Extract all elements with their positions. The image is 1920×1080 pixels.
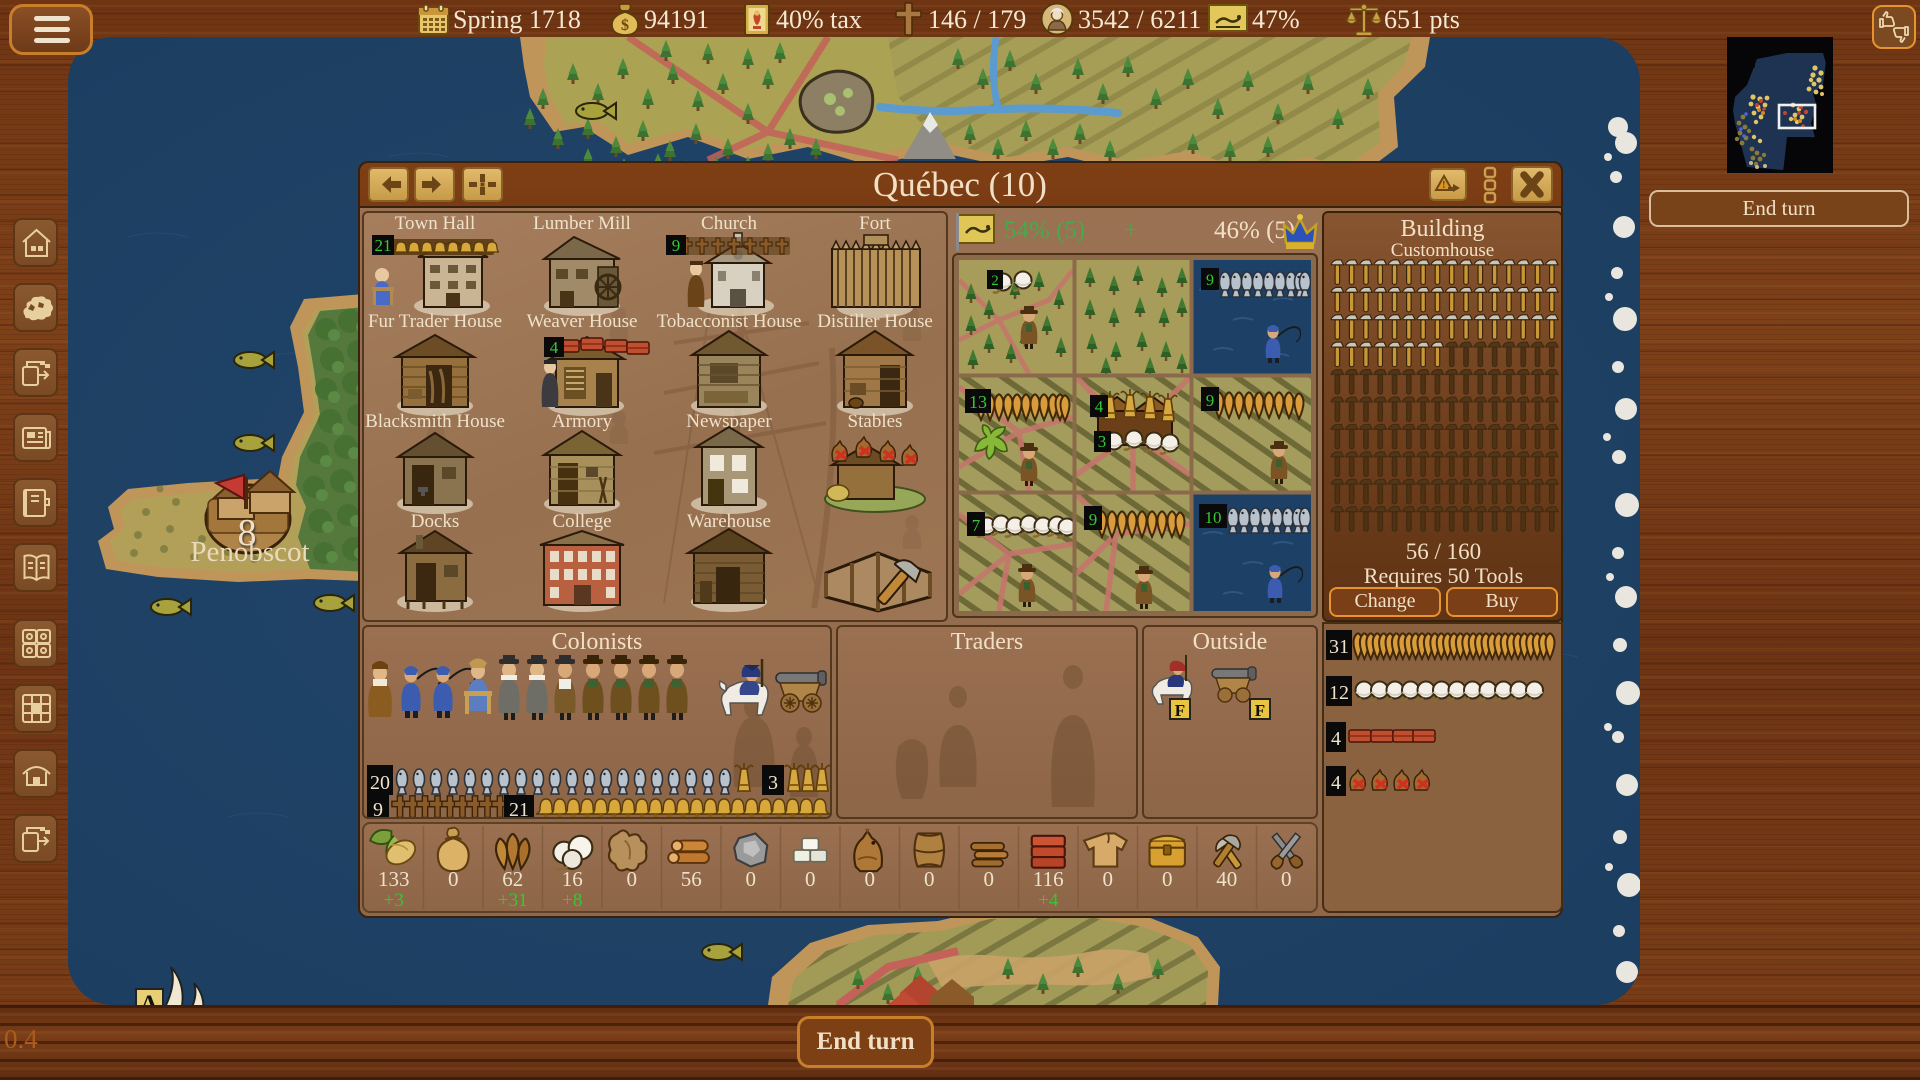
svg-text:9: 9: [1206, 272, 1214, 289]
svg-text:$: $: [621, 17, 629, 34]
svg-text:16: 16: [562, 867, 583, 891]
svg-text:+4: +4: [1038, 890, 1059, 911]
svg-text:0: 0: [448, 867, 459, 891]
svg-text:21: 21: [509, 799, 529, 819]
svg-text:0: 0: [627, 867, 638, 891]
svg-text:F: F: [1175, 701, 1185, 720]
svg-text:Church: Church: [701, 213, 757, 234]
svg-text:0: 0: [984, 867, 995, 891]
svg-text:10: 10: [1205, 508, 1222, 527]
svg-text:0: 0: [924, 867, 935, 891]
svg-text:Fort: Fort: [859, 213, 891, 234]
svg-text:F: F: [1255, 701, 1265, 720]
svg-text:3: 3: [1098, 432, 1107, 451]
svg-text:0: 0: [1162, 867, 1173, 891]
svg-text:Docks: Docks: [411, 511, 460, 532]
svg-text:+31: +31: [498, 890, 528, 911]
svg-text:3: 3: [768, 772, 778, 794]
svg-text:Lumber Mill: Lumber Mill: [533, 213, 631, 234]
svg-text:7: 7: [972, 516, 981, 535]
svg-text:Penobscot: Penobscot: [190, 536, 309, 568]
svg-text:116: 116: [1033, 867, 1064, 891]
svg-text:4: 4: [550, 338, 559, 357]
svg-text:Distiller House: Distiller House: [817, 311, 933, 332]
svg-text:+3: +3: [384, 890, 404, 911]
svg-text:+8: +8: [562, 890, 582, 911]
svg-text:Armory: Armory: [552, 411, 613, 432]
svg-text:!: !: [1442, 179, 1446, 191]
svg-text:12: 12: [1329, 682, 1349, 704]
svg-text:0: 0: [1103, 867, 1114, 891]
svg-text:9: 9: [672, 236, 681, 255]
svg-text:4: 4: [1095, 397, 1104, 416]
svg-text:Blacksmith House: Blacksmith House: [365, 411, 505, 432]
svg-text:0: 0: [1281, 867, 1292, 891]
svg-text:Tobacconist House: Tobacconist House: [657, 311, 802, 332]
svg-text:College: College: [552, 511, 611, 532]
svg-text:0: 0: [746, 867, 757, 891]
svg-text:Fur Trader House: Fur Trader House: [368, 311, 502, 332]
svg-text:9: 9: [1206, 391, 1215, 410]
svg-text:21: 21: [375, 236, 392, 255]
svg-text:0: 0: [805, 867, 816, 891]
svg-text:2: 2: [991, 273, 999, 289]
svg-text:9: 9: [1089, 510, 1098, 529]
svg-text:4: 4: [1331, 772, 1341, 794]
svg-text:62: 62: [502, 867, 523, 891]
svg-text:A: A: [140, 991, 158, 1005]
svg-text:56: 56: [681, 867, 702, 891]
svg-text:0: 0: [865, 867, 876, 891]
svg-text:13: 13: [969, 392, 987, 412]
svg-text:133: 133: [378, 867, 410, 891]
svg-text:40: 40: [1216, 867, 1237, 891]
svg-text:4: 4: [1331, 728, 1341, 750]
svg-text:20: 20: [370, 772, 390, 794]
svg-text:Stables: Stables: [848, 411, 903, 432]
svg-text:31: 31: [1329, 636, 1349, 658]
svg-text:Weaver House: Weaver House: [527, 311, 638, 332]
svg-text:9: 9: [373, 799, 383, 819]
svg-text:Town Hall: Town Hall: [395, 213, 475, 234]
